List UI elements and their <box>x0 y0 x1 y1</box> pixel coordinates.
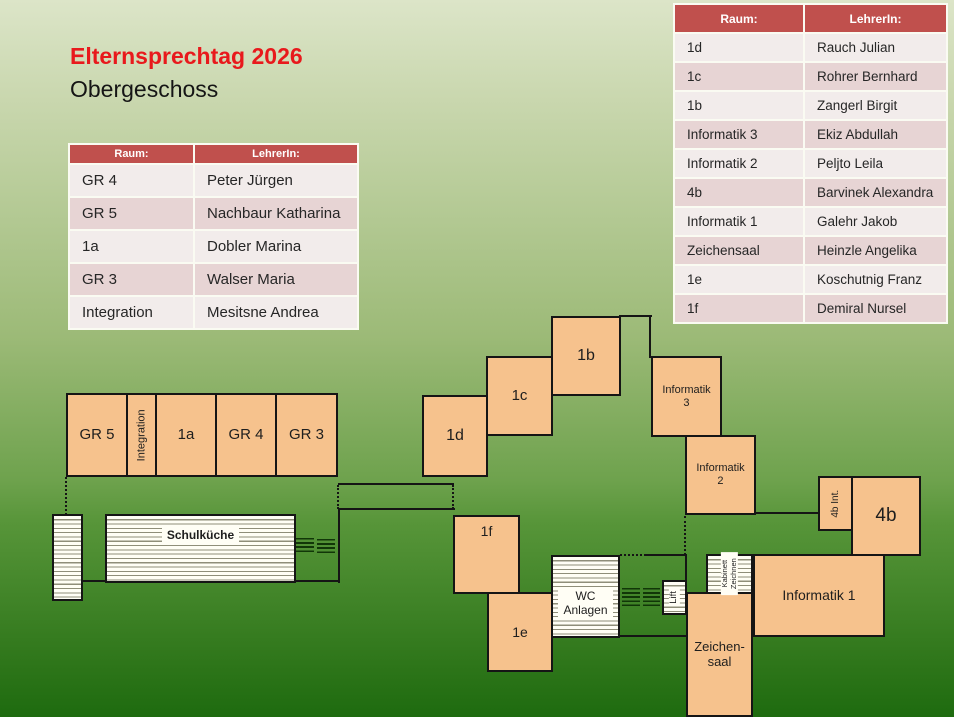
room-schulkueche: Schulküche <box>105 514 296 583</box>
room-1b: 1b <box>551 316 621 396</box>
dotted-passage-line <box>684 516 686 555</box>
table-row: 1dRauch Julian <box>675 34 946 61</box>
corridor-wall <box>620 635 687 637</box>
room-gr4: GR 4 <box>215 393 277 477</box>
room-cell: Informatik 1 <box>675 208 803 235</box>
corridor-wall <box>649 315 651 358</box>
stair-hatch <box>643 588 660 606</box>
slide: Elternsprechtag 2026 Obergeschoss Raum: … <box>0 0 954 717</box>
column-header-room: Raum: <box>675 5 803 32</box>
page-title: Elternsprechtag 2026 <box>70 40 303 72</box>
teacher-cell: Demiral Nursel <box>805 295 946 322</box>
room-cell: GR 3 <box>70 264 193 295</box>
room-informatik-2: Informatik 2 <box>685 435 756 515</box>
teacher-cell: Nachbaur Katharina <box>195 198 357 229</box>
dotted-passage-line <box>620 554 646 556</box>
room-teacher-table-left: Raum: LehrerIn: GR 4Peter Jürgen GR 5Nac… <box>68 143 359 330</box>
room-1c: 1c <box>486 356 553 436</box>
room-1a: 1a <box>155 393 217 477</box>
room-lift: Lift <box>662 580 687 615</box>
teacher-cell: Koschutnig Franz <box>805 266 946 293</box>
room-1e: 1e <box>487 592 553 672</box>
corridor-wall <box>294 580 340 582</box>
teacher-cell: Dobler Marina <box>195 231 357 262</box>
room-cell: Informatik 3 <box>675 121 803 148</box>
teacher-cell: Rohrer Bernhard <box>805 63 946 90</box>
room-cell: Integration <box>70 297 193 328</box>
table-row: GR 3Walser Maria <box>70 264 357 295</box>
column-header-teacher: LehrerIn: <box>805 5 946 32</box>
room-1f: 1f <box>453 515 520 594</box>
teacher-cell: Barvinek Alexandra <box>805 179 946 206</box>
room-4b: 4b <box>851 476 921 556</box>
room-cell: Informatik 2 <box>675 150 803 177</box>
corridor-wall <box>685 554 687 594</box>
room-zeichensaal: Zeichen- saal <box>686 592 753 717</box>
teacher-cell: Peljto Leila <box>805 150 946 177</box>
room-cell: 1a <box>70 231 193 262</box>
column-header-room: Raum: <box>70 145 193 163</box>
table-row: GR 4Peter Jürgen <box>70 165 357 196</box>
teacher-cell: Zangerl Birgit <box>805 92 946 119</box>
corridor-wall <box>338 483 454 485</box>
teacher-cell: Heinzle Angelika <box>805 237 946 264</box>
table-row: IntegrationMesitsne Andrea <box>70 297 357 328</box>
table-row: 1bZangerl Birgit <box>675 92 946 119</box>
room-cell: GR 5 <box>70 198 193 229</box>
corridor-wall <box>338 508 340 583</box>
room-cell: 1c <box>675 63 803 90</box>
room-teacher-table-right: Raum: LehrerIn: 1dRauch Julian 1cRohrer … <box>673 3 948 324</box>
room-cell: 1b <box>675 92 803 119</box>
room-informatik-1: Informatik 1 <box>753 554 885 637</box>
teacher-cell: Galehr Jakob <box>805 208 946 235</box>
room-1d: 1d <box>422 395 488 477</box>
table-row: 1aDobler Marina <box>70 231 357 262</box>
dotted-passage-line <box>65 477 67 515</box>
table-row: 1eKoschutnig Franz <box>675 266 946 293</box>
table-row: GR 5Nachbaur Katharina <box>70 198 357 229</box>
table-header-row: Raum: LehrerIn: <box>675 5 946 32</box>
room-cell: GR 4 <box>70 165 193 196</box>
teacher-cell: Walser Maria <box>195 264 357 295</box>
room-kabinett-zeichnen: Kabinett Zeichnen <box>706 554 753 594</box>
room-gr5: GR 5 <box>66 393 128 477</box>
teacher-cell: Ekiz Abdullah <box>805 121 946 148</box>
corridor-wall <box>82 580 107 582</box>
room-wc-anlagen: WC Anlagen <box>551 555 620 638</box>
room-cell: 1e <box>675 266 803 293</box>
stair-hatch <box>622 588 640 606</box>
page-subtitle: Obergeschoss <box>70 72 303 106</box>
teacher-cell: Rauch Julian <box>805 34 946 61</box>
corridor-wall <box>619 315 652 317</box>
table-row: Informatik 3Ekiz Abdullah <box>675 121 946 148</box>
corridor-wall <box>338 508 455 510</box>
column-header-teacher: LehrerIn: <box>195 145 357 163</box>
corridor-wall <box>754 512 819 514</box>
table-row: 1cRohrer Bernhard <box>675 63 946 90</box>
corridor-wall <box>644 554 687 556</box>
teacher-cell: Mesitsne Andrea <box>195 297 357 328</box>
table-header-row: Raum: LehrerIn: <box>70 145 357 163</box>
room-cell: Zeichensaal <box>675 237 803 264</box>
title-block: Elternsprechtag 2026 Obergeschoss <box>70 40 303 106</box>
room-cell: 4b <box>675 179 803 206</box>
room-cell: 1d <box>675 34 803 61</box>
teacher-cell: Peter Jürgen <box>195 165 357 196</box>
room-informatik-3: Informatik 3 <box>651 356 722 437</box>
table-row: 1fDemiral Nursel <box>675 295 946 322</box>
table-row: Informatik 1Galehr Jakob <box>675 208 946 235</box>
dotted-passage-line <box>452 485 454 509</box>
table-row: ZeichensaalHeinzle Angelika <box>675 237 946 264</box>
stairs-left <box>52 514 83 601</box>
stair-hatch <box>296 538 314 553</box>
room-cell: 1f <box>675 295 803 322</box>
table-row: 4bBarvinek Alexandra <box>675 179 946 206</box>
table-row: Informatik 2Peljto Leila <box>675 150 946 177</box>
room-gr3: GR 3 <box>275 393 338 477</box>
room-integration: Integration <box>126 393 157 477</box>
room-4b-int: 4b Int. <box>818 476 853 531</box>
stair-hatch <box>317 539 335 554</box>
dotted-passage-line <box>337 485 339 509</box>
